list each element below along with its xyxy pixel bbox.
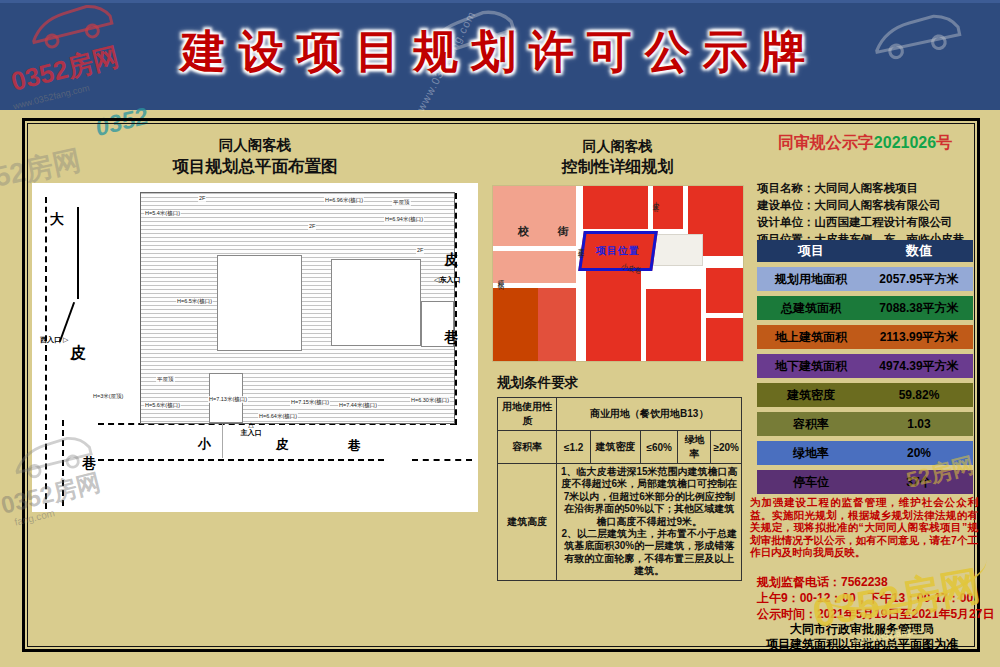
main-entrance-label: △主入口: [234, 421, 268, 437]
plan-annotation: H=7.13米(檐口): [208, 396, 248, 403]
planning-conditions-table: 用地使用性质 商业用地（餐饮用地B13） 容积率 ≤1.2 建筑密度 ≤60% …: [497, 397, 742, 581]
plan-boundary-line: [455, 193, 457, 425]
row-value: 7088.38平方米: [865, 296, 973, 320]
row-label: 地下建筑面积: [757, 354, 865, 378]
serial-suffix: 号: [936, 134, 952, 151]
row-value: 37个: [865, 470, 973, 494]
street-label-dapixiang: 巷: [82, 455, 96, 473]
map-label-dapi-lane: 大皮巷: [576, 242, 585, 248]
map-block: [583, 186, 648, 229]
row-label: 地上建筑面积: [757, 325, 865, 349]
plan-annotation: 平屋顶: [156, 376, 175, 383]
map-label-school-street: 校 街: [518, 224, 578, 239]
cond-far-label: 容积率: [498, 431, 557, 464]
plan-path-line: [222, 424, 223, 458]
courtyard: [217, 255, 302, 351]
street-label-xiaopixiang: 小: [198, 435, 211, 453]
zoning-map-title-line1: 同人阁客栈: [490, 138, 745, 156]
project-info-list: 项目名称：大同同人阁客栈项目 建设单位：大同同人阁客栈有限公司 设计单位：山西国…: [757, 180, 977, 248]
zoning-map-title-line2: 控制性详细规划: [490, 157, 745, 178]
row-label: 停车位: [757, 470, 865, 494]
street-label-xiaopixiang: 巷: [444, 329, 458, 347]
serial-prefix: 同审规公示字: [778, 134, 874, 151]
row-label: 建筑密度: [757, 383, 865, 407]
plan-annotation: H=5.4米(檐口): [144, 210, 181, 217]
page-title: 建设项目规划许可公示牌: [0, 22, 1000, 82]
street-label-dapixiang: 皮: [70, 343, 86, 364]
row-value: 4974.39平方米: [865, 354, 973, 378]
table-row: 建筑密度59.82%: [757, 383, 973, 407]
row-label: 规划用地面积: [757, 267, 865, 291]
map-block: [706, 318, 743, 361]
map-block: [493, 251, 576, 283]
cond-height-label: 建筑高度: [498, 464, 557, 581]
public-notice-paragraph: 为加强建设工程的监督管理，维护社会公众利益。实施阳光规划，根据城乡规划法律法规的…: [750, 496, 978, 559]
plan-annotation: 2F: [198, 195, 206, 202]
plan-annotation: H=6.5米(檐口): [176, 298, 213, 305]
east-entrance-label: ◁东入口: [434, 276, 460, 284]
plan-boundary-line: [98, 459, 384, 461]
header-item: 项目: [757, 240, 865, 262]
cond-row1-value: 商业用地（餐饮用地B13）: [557, 398, 742, 431]
table-row: 容积率1.03: [757, 412, 973, 436]
agency-note: 项目建筑面积以审批的总平面图为准: [742, 636, 982, 653]
map-label-shixiao-street: 师校街: [496, 274, 505, 280]
info-project-name: 项目名称：大同同人阁客栈项目: [757, 180, 977, 197]
plan-boundary-line: [62, 420, 64, 506]
row-value: 59.82%: [865, 383, 973, 407]
plan-annotation: H=7.15米(檐口): [290, 399, 330, 406]
street-label-xiaopixiang: 巷: [348, 437, 361, 455]
serial-digits: 2021026: [874, 134, 936, 151]
office-hours: 上午9：00-12：00，下午13：00-17：00: [757, 590, 973, 607]
street-label-xiaopixiang: 皮: [276, 436, 289, 454]
map-block: [653, 234, 703, 266]
plan-annotation: 2F: [416, 247, 424, 254]
street-label-dapixiang: 大: [50, 211, 64, 229]
site-plan-title-line1: 同人阁客栈: [40, 136, 470, 155]
table-row: 规划用地面积2057.95平方米: [757, 267, 973, 291]
cond-density-value: ≤60%: [640, 431, 678, 464]
table-row: 绿地率20%: [757, 441, 973, 465]
project-location-block: 项目位置: [578, 231, 658, 271]
west-entrance-text: 西入口: [40, 336, 61, 343]
info-construction-unit: 建设单位：大同同人阁客栈有限公司: [757, 197, 977, 214]
plan-annotation: 平屋顶: [392, 199, 411, 206]
map-block: [538, 288, 576, 361]
header-value: 数值: [865, 240, 973, 262]
plan-annotation: H=6.64米(檐口): [258, 413, 298, 420]
table-row: 地上建筑面积2113.99平方米: [757, 325, 973, 349]
map-block: [646, 289, 701, 361]
row-value: 2057.95平方米: [865, 267, 973, 291]
table-row: 总建筑面积7088.38平方米: [757, 296, 973, 320]
plan-annotation: H=6.30米(檐口): [410, 397, 450, 404]
indicator-table: 项目 数值 规划用地面积2057.95平方米 总建筑面积7088.38平方米 地…: [757, 240, 973, 494]
cond-height-text: 1、临大皮巷进深15米范围内建筑檐口高度不得超过6米，局部建筑檐口可控制在7米以…: [557, 464, 742, 581]
cond-green-label: 绿地率: [678, 431, 711, 464]
plan-annotation: H=6.96米(檐口): [324, 197, 364, 204]
site-plan-drawing: H=5.4米(檐口) H=6.96米(檐口) H=6.94米(檐口) 2F 2F…: [32, 183, 478, 512]
plan-annotation: H=3米(屋顶): [92, 393, 124, 400]
plan-annotation: H=7.44米(檐口): [338, 402, 378, 409]
row-value: 20%: [865, 441, 973, 465]
map-block: [493, 288, 538, 361]
row-label: 总建筑面积: [757, 296, 865, 320]
triangle-up-icon: △: [248, 421, 253, 428]
map-block: [653, 186, 683, 229]
cond-green-value: ≥20%: [711, 431, 742, 464]
permit-serial-number: 同审规公示字2021026号: [753, 133, 977, 154]
cond-row1-label: 用地使用性质: [498, 398, 557, 431]
table-row: 地下建筑面积4974.39平方米: [757, 354, 973, 378]
row-label: 容积率: [757, 412, 865, 436]
plan-annotation: H=5.6米(檐口): [144, 402, 181, 409]
plan-annotation: 2F: [308, 223, 316, 230]
table-row: 停车位37个: [757, 470, 973, 494]
zoning-map: 项目位置 校 街 师校街 大皮巷 小皮巷 小皮巷: [492, 185, 744, 362]
triangle-right-icon: ▷: [63, 336, 68, 343]
map-label-xiaopi-lane: 小皮巷: [651, 196, 660, 202]
row-label: 绿地率: [757, 441, 865, 465]
main-entrance-text: 主入口: [241, 429, 262, 436]
courtyard: [331, 259, 421, 346]
planning-conditions-title: 规划条件要求: [497, 374, 578, 392]
plan-annotation: H=6.94米(檐口): [384, 216, 424, 223]
cond-density-label: 建筑密度: [590, 431, 640, 464]
street-label-xiaopixiang: 皮: [444, 251, 458, 269]
info-design-unit: 设计单位：山西国建工程设计有限公司: [757, 214, 977, 231]
map-block: [706, 268, 743, 313]
east-entrance-text: 东入口: [439, 276, 460, 283]
plan-boundary-line: [45, 197, 47, 509]
plan-boundary-line: [412, 459, 472, 461]
project-location-label: 项目位置: [596, 244, 640, 258]
map-block: [586, 271, 641, 361]
row-value: 2113.99平方米: [865, 325, 973, 349]
west-entrance-label: 西入口 ▷: [40, 336, 68, 344]
indicator-table-header: 项目 数值: [757, 240, 973, 262]
plan-boundary-line: [77, 207, 79, 299]
site-plan-title-line2: 项目规划总平面布置图: [40, 156, 470, 178]
row-value: 1.03: [865, 412, 973, 436]
cond-far-value: ≤1.2: [557, 431, 590, 464]
supervision-phone: 规划监督电话：7562238: [757, 574, 888, 591]
